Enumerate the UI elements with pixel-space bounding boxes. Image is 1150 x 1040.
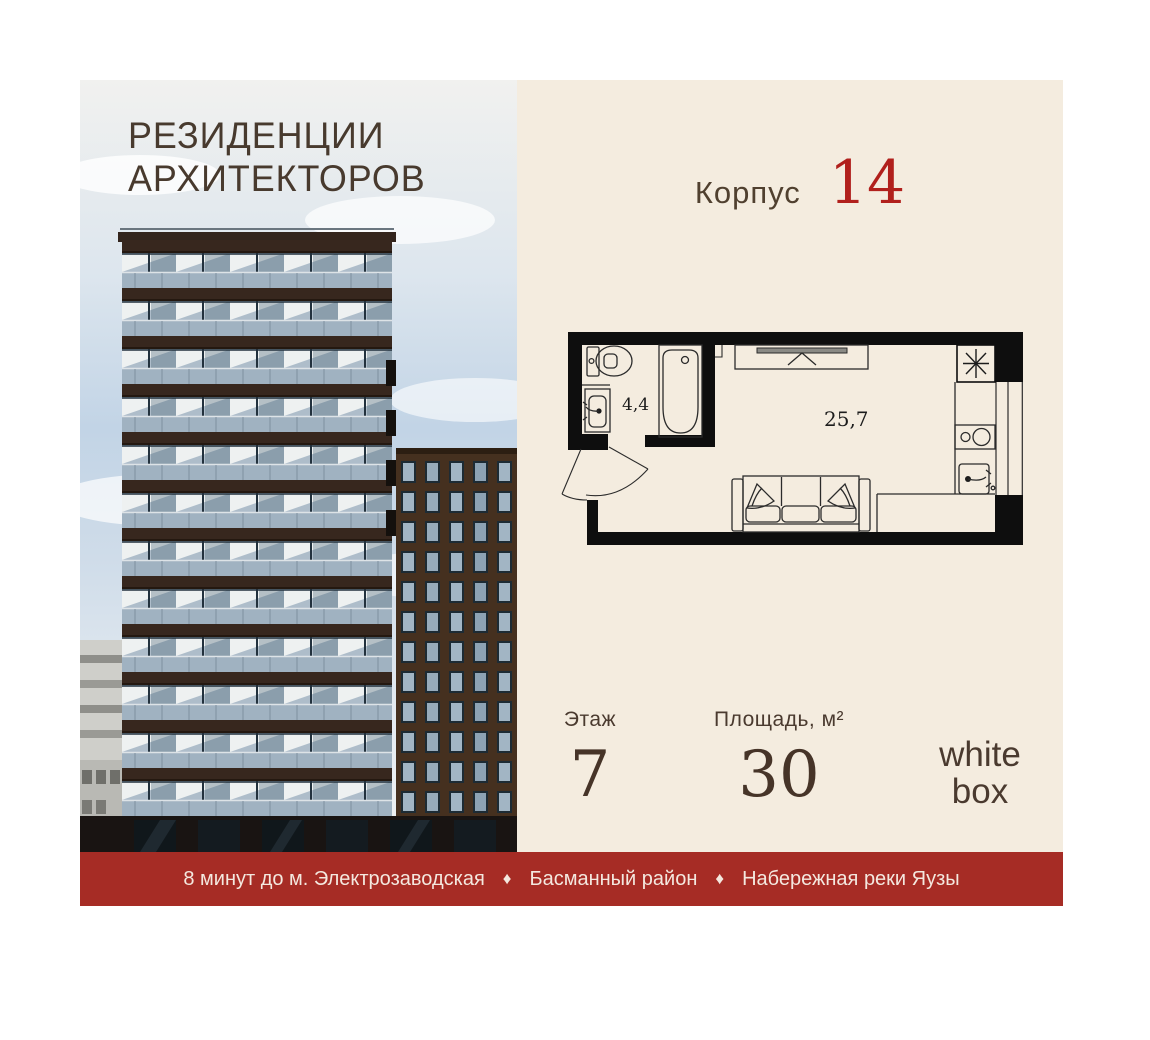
sofa-icon [732, 476, 870, 532]
korpus-number: 14 [829, 148, 905, 218]
floor-value: 7 [532, 738, 648, 812]
living-area-label: 25,7 [824, 407, 869, 431]
diamond-icon: ♦ [503, 870, 512, 887]
sink-icon [582, 385, 610, 432]
bathroom-area-label: 4,4 [622, 395, 649, 415]
vent-shaft-icon [957, 345, 995, 382]
main-tower [118, 229, 396, 816]
stove-icon [955, 425, 995, 449]
area-value: 30 [668, 738, 890, 812]
window-lines [996, 382, 1022, 495]
finish-line-2: box [890, 773, 1070, 810]
wardrobe-icon [735, 345, 868, 369]
side-building [396, 448, 517, 852]
area-stat: Площадь, м² 30 [668, 708, 890, 812]
finish-type-label: white box [890, 736, 1070, 810]
flyer-card: РЕЗИДЕНЦИИ АРХИТЕКТОРОВ Корпус 14 [80, 80, 1063, 906]
banner-item-metro: 8 минут до м. Электрозаводская [183, 868, 484, 891]
project-logo: РЕЗИДЕНЦИИ АРХИТЕКТОРОВ [128, 114, 426, 200]
banner-item-district: Басманный район [529, 868, 697, 891]
floor-plan: 4,4 25,7 [558, 330, 1028, 554]
bath-icon [659, 345, 702, 437]
location-banner: 8 минут до м. Электрозаводская ♦ Басманн… [80, 852, 1063, 906]
kitchen-sink-icon [959, 464, 995, 494]
area-label: Площадь, м² [668, 708, 890, 732]
floor-stat: Этаж 7 [532, 708, 648, 812]
banner-item-river: Набережная реки Яузы [742, 868, 960, 891]
building-number-header: Корпус 14 [600, 148, 1000, 218]
logo-line-1: РЕЗИДЕНЦИИ [128, 114, 426, 157]
diamond-icon: ♦ [715, 870, 724, 887]
finish-line-1: white [890, 736, 1070, 773]
floor-label: Этаж [532, 708, 648, 732]
toilet-icon [587, 346, 632, 376]
logo-line-2: АРХИТЕКТОРОВ [128, 157, 426, 200]
building-photo: РЕЗИДЕНЦИИ АРХИТЕКТОРОВ [80, 80, 517, 852]
ground-floor [80, 816, 517, 852]
korpus-label: Корпус [695, 175, 801, 211]
floor-plan-drawing: 4,4 25,7 [558, 330, 1028, 554]
